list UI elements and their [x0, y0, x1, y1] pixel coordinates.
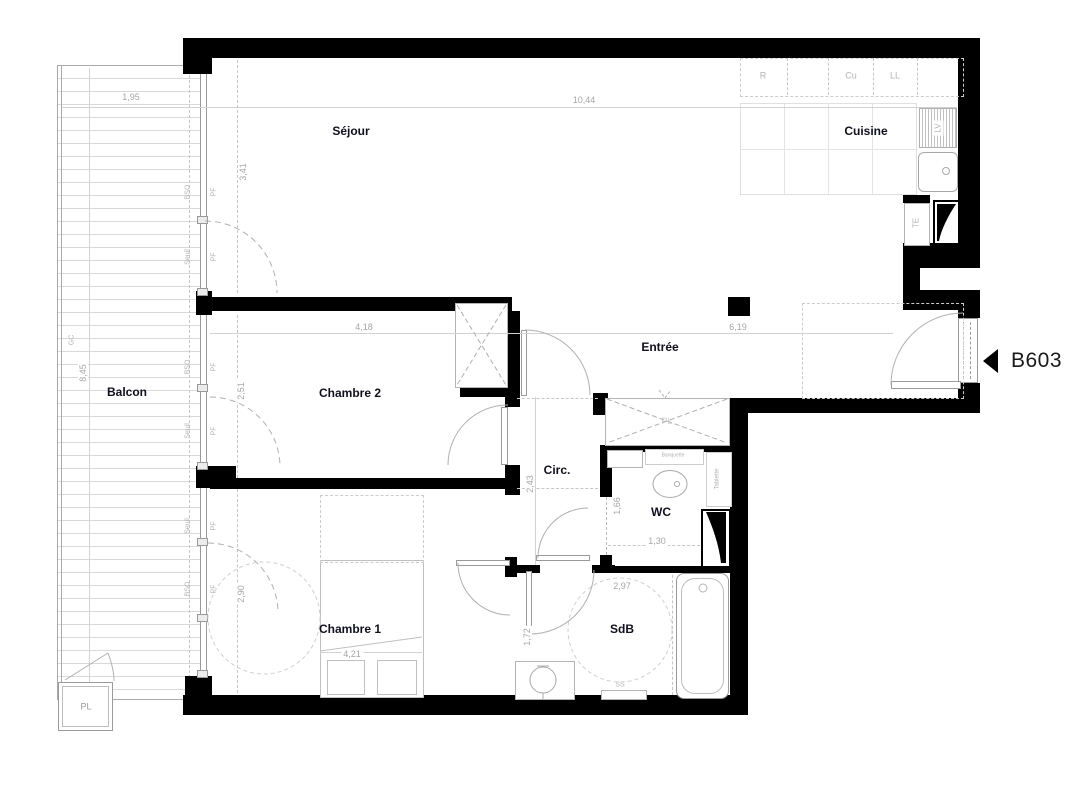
french-window-label: PF — [211, 427, 218, 436]
bed-fold-line — [320, 637, 422, 651]
dim-sdb-width: 2,97 — [611, 581, 633, 591]
circ-sdb-door-swing — [538, 508, 588, 558]
room-label-sdb: SdB — [610, 622, 634, 636]
plan-linework — [0, 0, 1085, 800]
room-label-wc: WC — [651, 505, 671, 519]
blind-label: BSO — [185, 185, 192, 200]
dim-chambre2-bay: 2,51 — [236, 380, 246, 402]
french-window-label: PF — [211, 522, 218, 531]
threshold-label: Seuil — [185, 249, 192, 265]
room-label-entree: Entrée — [641, 340, 678, 354]
room-label-pl-balcon: PL — [80, 704, 91, 711]
chambre2-balcony-door-swing — [210, 397, 280, 467]
dim-chambre2-width: 4,18 — [353, 322, 375, 332]
dim-wc-depth: 1,66 — [612, 495, 622, 517]
floor-plan: LV TE B603 PL Banquette Tablette SS — [0, 0, 1085, 800]
room-label-chambre1: Chambre 1 — [319, 622, 381, 636]
bathtub-drain — [699, 584, 707, 592]
balcony-closet-door — [65, 653, 114, 681]
dim-balcon-length: 8,45 — [78, 362, 88, 384]
entry-door-swing — [891, 313, 963, 385]
fridge-label: R — [760, 73, 767, 80]
dim-sdb-door: 1,72 — [522, 626, 532, 648]
dim-sejour-width: 10,44 — [571, 95, 598, 105]
threshold-label: Seuil — [185, 518, 192, 534]
dim-circ-depth: 2,43 — [525, 473, 535, 495]
hob-label: Cu — [845, 73, 857, 80]
circ-door-swing — [525, 330, 590, 395]
room-label-circ: Circ. — [544, 463, 571, 477]
room-label-sejour: Séjour — [332, 124, 369, 138]
sdb-door-swing — [530, 570, 594, 634]
unit-entry-arrow-icon — [983, 349, 998, 373]
guardrail-label: GC — [69, 335, 76, 346]
french-window-label: PF — [211, 188, 218, 197]
french-window-label: PF — [211, 585, 218, 594]
room-label-cuisine: Cuisine — [844, 124, 887, 138]
duct-wedge-wc-icon — [706, 512, 726, 563]
french-window-label: PF — [211, 253, 218, 262]
dim-balcon-width: 1,95 — [120, 92, 142, 102]
entree-closet-cross — [607, 399, 727, 443]
dim-sejour-bay: 3,41 — [238, 161, 248, 183]
chambre2-door-swing — [448, 405, 508, 465]
room-label-chambre2: Chambre 2 — [319, 386, 381, 400]
dim-entree-width: 6,19 — [727, 322, 749, 332]
toilet — [653, 471, 687, 498]
threshold-label: Seuil — [185, 423, 192, 439]
french-window-label: PF — [211, 363, 218, 372]
blind-label: BSO — [185, 582, 192, 597]
chambre1-door-swing — [458, 563, 510, 615]
entree-closet-hinge-mark — [659, 390, 671, 398]
duct-wedge-kitchen-icon — [937, 204, 956, 241]
blind-label: BSO — [185, 360, 192, 375]
room-label-balcon: Balcon — [107, 385, 147, 399]
washer-label: LL — [890, 73, 900, 80]
dim-chambre1-width: 4,21 — [341, 649, 363, 659]
kitchen-sink-drain — [943, 168, 950, 175]
dim-chambre1-bay: 2,90 — [236, 583, 246, 605]
chambre2-closet-cross — [457, 305, 506, 385]
chambre1-turning-circle — [208, 562, 320, 674]
sdb-washbasin — [530, 667, 556, 693]
dim-wc-width: 1,30 — [646, 536, 668, 546]
